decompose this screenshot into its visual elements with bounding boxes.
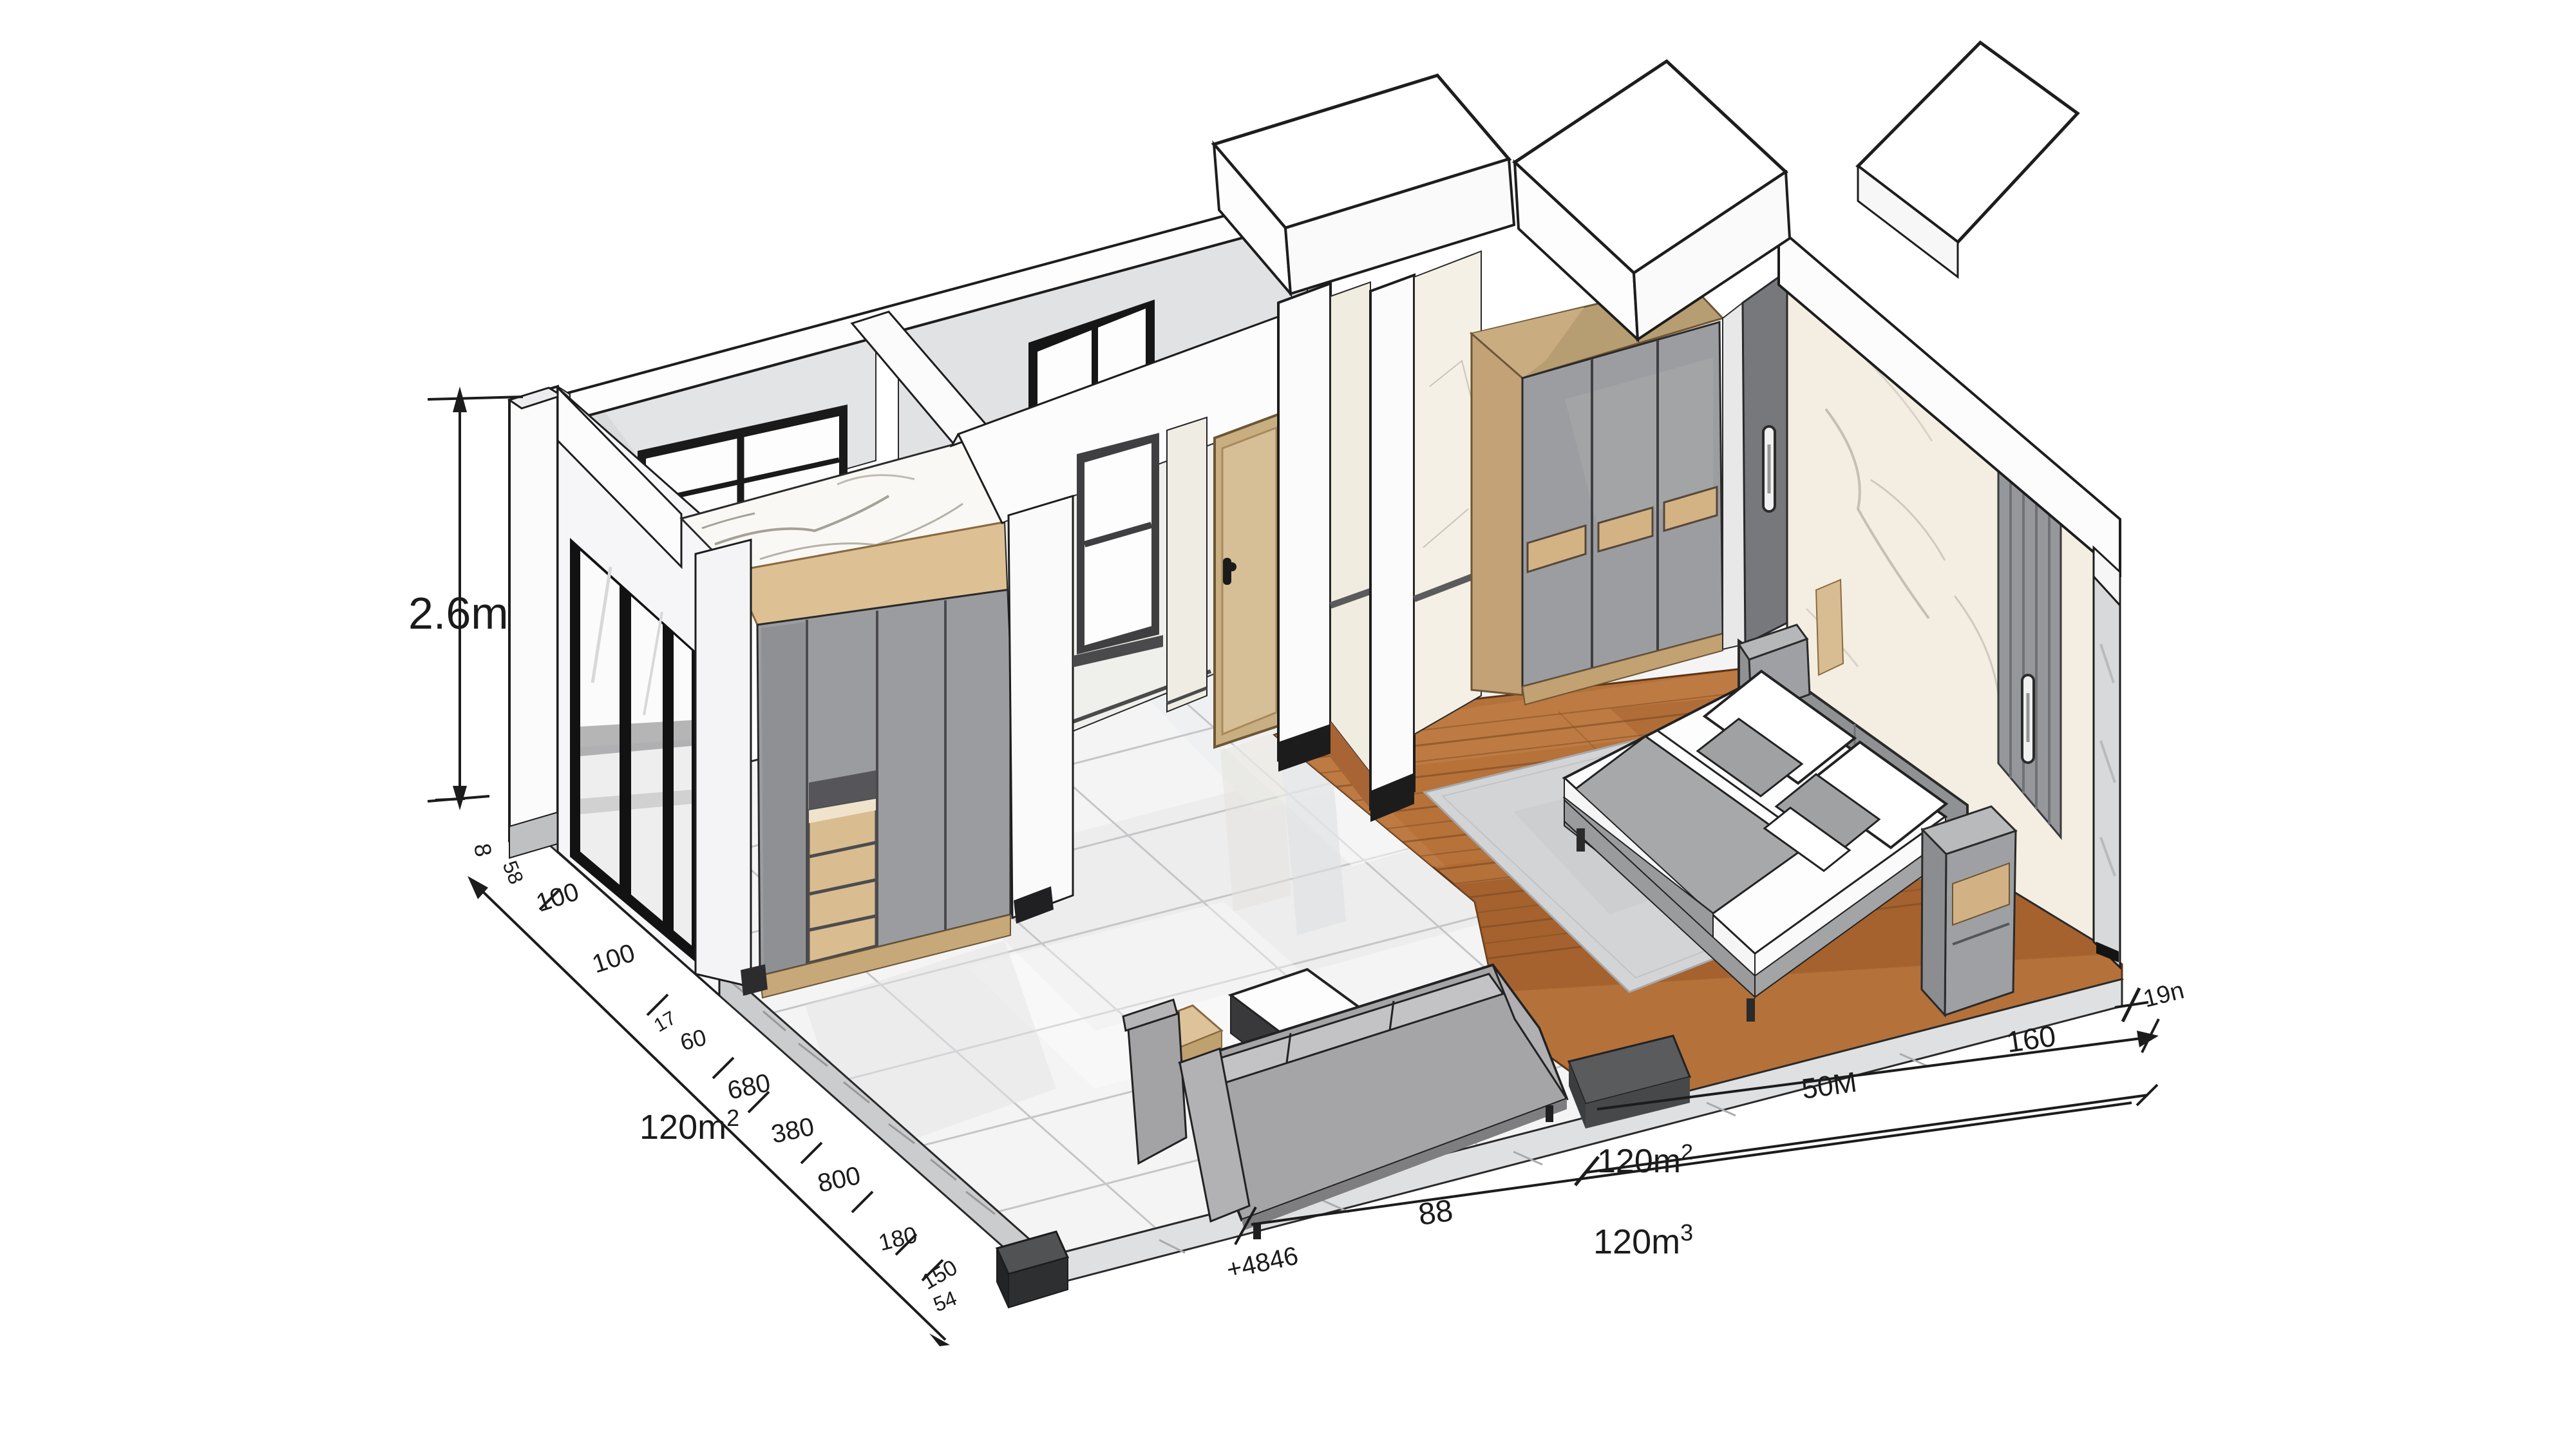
svg-text:120m2: 120m2 bbox=[639, 1105, 739, 1147]
svg-text:120m2: 120m2 bbox=[1597, 1140, 1693, 1180]
svg-text:160: 160 bbox=[2004, 1019, 2058, 1059]
svg-text:120m3: 120m3 bbox=[1593, 1219, 1693, 1261]
svg-text:88: 88 bbox=[1416, 1194, 1455, 1232]
svg-text:2.6m: 2.6m bbox=[408, 588, 509, 638]
